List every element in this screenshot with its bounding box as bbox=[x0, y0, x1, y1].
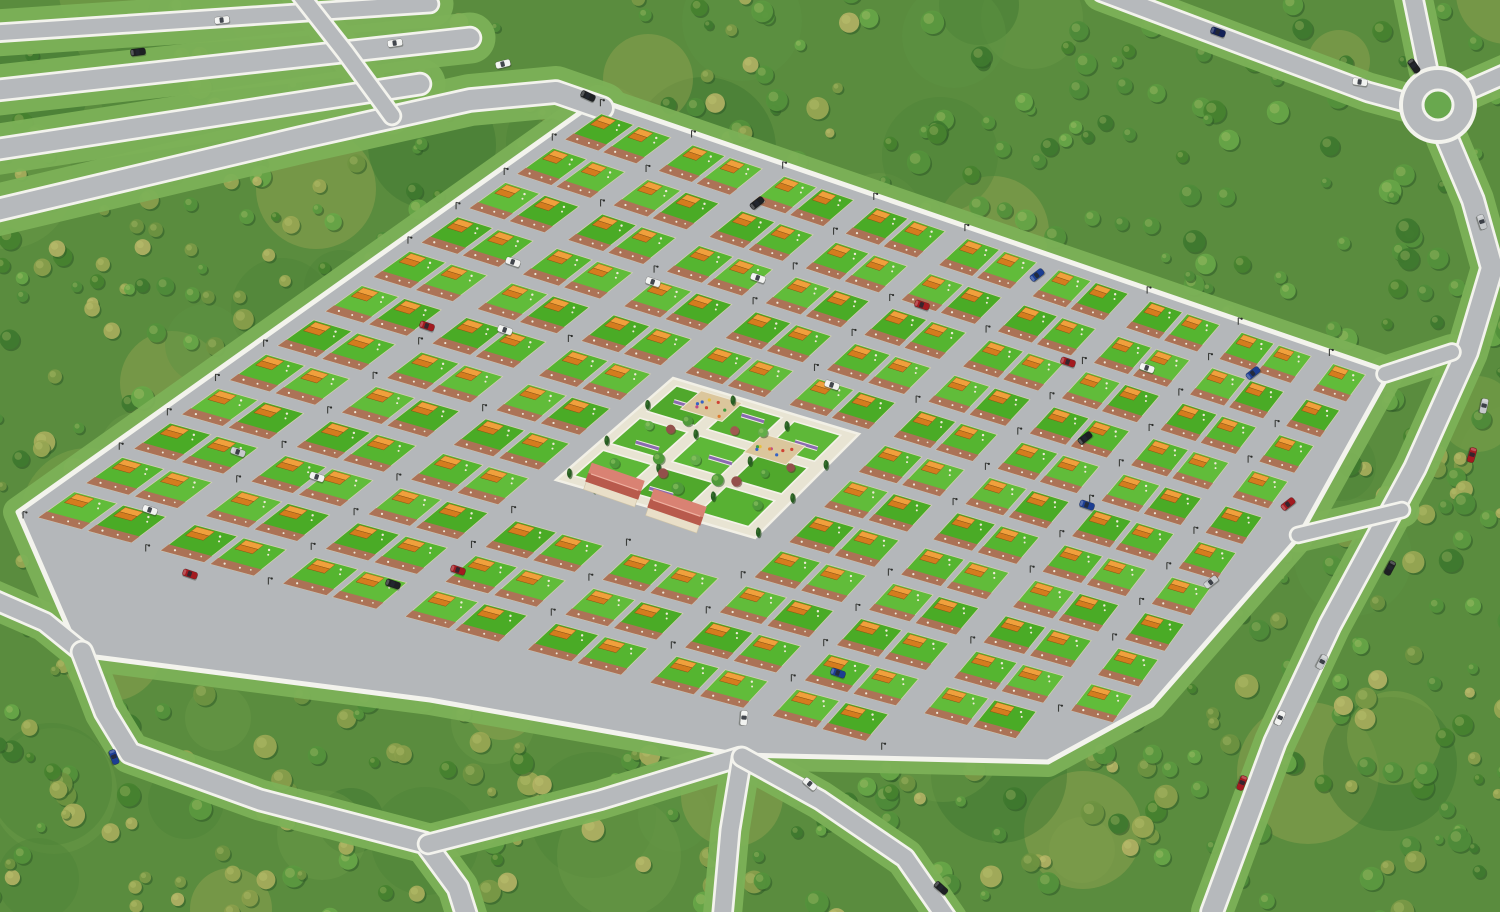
walkway bbox=[774, 327, 776, 329]
patio-furniture bbox=[848, 644, 850, 646]
patio-furniture bbox=[444, 342, 446, 344]
patio-furniture bbox=[901, 387, 903, 389]
patio-furniture bbox=[927, 350, 929, 352]
patio-furniture bbox=[678, 270, 680, 272]
patio-furniture bbox=[987, 276, 989, 278]
patio-furniture bbox=[856, 420, 858, 422]
patio-furniture bbox=[874, 650, 876, 652]
walkway bbox=[822, 700, 824, 702]
walkway bbox=[1116, 525, 1118, 527]
walkway bbox=[940, 421, 942, 423]
patio-furniture bbox=[579, 238, 581, 240]
walkway bbox=[593, 408, 595, 410]
walkway bbox=[529, 341, 531, 343]
walkway bbox=[98, 502, 100, 504]
patio-furniture bbox=[838, 368, 840, 370]
walkway bbox=[1242, 432, 1244, 434]
patio-furniture bbox=[980, 413, 982, 415]
patio-furniture bbox=[458, 580, 460, 582]
patio-furniture bbox=[728, 188, 730, 190]
patio-furniture bbox=[712, 695, 714, 697]
walkway bbox=[1114, 293, 1116, 295]
patio-furniture bbox=[323, 450, 325, 452]
patio-furniture bbox=[394, 327, 396, 329]
patio-furniture bbox=[326, 498, 328, 500]
patio-furniture bbox=[816, 315, 818, 317]
walkway bbox=[902, 678, 904, 680]
patio-furniture bbox=[876, 286, 878, 288]
patio-furniture bbox=[1008, 330, 1010, 332]
walkway bbox=[703, 203, 705, 205]
patio-furniture bbox=[289, 486, 291, 488]
walkway bbox=[963, 612, 965, 614]
patio-furniture bbox=[1008, 467, 1010, 469]
walkway bbox=[1273, 481, 1275, 483]
walkway bbox=[1145, 490, 1147, 492]
patio-furniture bbox=[917, 439, 919, 441]
patio-furniture bbox=[511, 361, 513, 363]
walkway bbox=[552, 443, 554, 445]
patio-furniture bbox=[1019, 516, 1021, 518]
patio-furniture bbox=[267, 385, 269, 387]
walkway bbox=[1043, 316, 1045, 318]
patio-furniture bbox=[823, 410, 825, 412]
walkway bbox=[804, 567, 806, 569]
walkway bbox=[427, 267, 429, 269]
patio-furniture bbox=[588, 142, 590, 144]
patio-furniture bbox=[1029, 336, 1031, 338]
walkway bbox=[854, 253, 856, 255]
patio-furniture bbox=[1182, 477, 1184, 479]
walkway bbox=[592, 413, 594, 415]
walkway bbox=[147, 516, 149, 518]
patio-furniture bbox=[801, 213, 803, 215]
patio-furniture bbox=[1295, 424, 1297, 426]
patio-furniture bbox=[1082, 535, 1084, 537]
patio-furniture bbox=[800, 718, 802, 720]
walkway bbox=[630, 648, 632, 650]
patio-furniture bbox=[624, 204, 626, 206]
walkway bbox=[263, 501, 265, 503]
patio-furniture bbox=[443, 390, 445, 392]
patio-furniture bbox=[1050, 480, 1052, 482]
patio-furniture bbox=[1097, 583, 1099, 585]
walkway bbox=[974, 386, 976, 388]
patio-furniture bbox=[99, 482, 101, 484]
patio-furniture bbox=[1028, 694, 1030, 696]
walkway bbox=[892, 223, 894, 225]
patio-furniture bbox=[1173, 339, 1175, 341]
patio-furniture bbox=[905, 615, 907, 617]
patio-furniture bbox=[424, 431, 426, 433]
patio-furniture bbox=[865, 692, 867, 694]
walkway bbox=[465, 469, 467, 471]
patio-furniture bbox=[438, 482, 440, 484]
walkway bbox=[378, 344, 380, 346]
walkway bbox=[1042, 320, 1044, 322]
walkway bbox=[735, 362, 737, 364]
walkway bbox=[1103, 604, 1105, 606]
patio-furniture bbox=[1191, 434, 1193, 436]
patio-furniture bbox=[849, 510, 851, 512]
patio-furniture bbox=[487, 258, 489, 260]
walkway bbox=[736, 357, 738, 359]
walkway bbox=[1270, 396, 1272, 398]
patio-furniture bbox=[968, 544, 970, 546]
walkway bbox=[571, 158, 573, 160]
walkway bbox=[850, 580, 852, 582]
patio-furniture bbox=[1154, 468, 1156, 470]
patio-furniture bbox=[312, 398, 314, 400]
patio-furniture bbox=[677, 596, 679, 598]
patio-furniture bbox=[689, 688, 691, 690]
patio-furniture bbox=[1007, 282, 1009, 284]
walkway bbox=[287, 365, 289, 367]
walkway bbox=[1203, 414, 1205, 416]
patio-furniture bbox=[669, 169, 671, 171]
walkway bbox=[239, 404, 241, 406]
patio-furniture bbox=[1290, 466, 1292, 468]
walkway bbox=[1076, 645, 1078, 647]
walkway bbox=[633, 378, 635, 380]
patio-furniture bbox=[868, 236, 870, 238]
patio-furniture bbox=[1189, 567, 1191, 569]
patio-furniture bbox=[723, 652, 725, 654]
patio-furniture bbox=[574, 380, 576, 382]
patio-furniture bbox=[657, 311, 659, 313]
patio-furniture bbox=[1241, 361, 1243, 363]
walkway bbox=[653, 142, 655, 144]
patio-furniture bbox=[544, 325, 546, 327]
walkway bbox=[286, 370, 288, 372]
walkway bbox=[398, 450, 400, 452]
patio-furniture bbox=[941, 626, 943, 628]
walkway bbox=[382, 296, 384, 298]
patio-furniture bbox=[428, 526, 430, 528]
patio-furniture bbox=[551, 374, 553, 376]
walkway bbox=[666, 617, 668, 619]
walkway bbox=[539, 532, 541, 534]
play-equipment bbox=[705, 406, 708, 409]
patio-furniture bbox=[580, 189, 582, 191]
patio-furniture bbox=[675, 221, 677, 223]
walkway bbox=[853, 258, 855, 260]
walkway bbox=[1203, 419, 1205, 421]
walkway bbox=[675, 338, 677, 340]
patio-furniture bbox=[761, 391, 763, 393]
patio-furniture bbox=[838, 321, 840, 323]
walkway bbox=[1015, 399, 1017, 401]
patio-furniture bbox=[1124, 414, 1126, 416]
walkway bbox=[701, 582, 703, 584]
walkway bbox=[1215, 467, 1217, 469]
patio-furniture bbox=[1133, 680, 1135, 682]
patio-furniture bbox=[698, 324, 700, 326]
walkway bbox=[854, 300, 856, 302]
patio-furniture bbox=[1093, 403, 1095, 405]
patio-furniture bbox=[766, 576, 768, 578]
patio-furniture bbox=[309, 446, 311, 448]
patio-furniture bbox=[687, 598, 689, 600]
patio-furniture bbox=[926, 577, 928, 579]
patio-furniture bbox=[368, 415, 370, 417]
patio-furniture bbox=[1024, 605, 1026, 607]
walkway bbox=[1352, 379, 1354, 381]
walkway bbox=[511, 477, 513, 479]
patio-furniture bbox=[448, 484, 450, 486]
walkway bbox=[1195, 588, 1197, 590]
walkway bbox=[736, 637, 738, 639]
patio-furniture bbox=[605, 666, 607, 668]
walkway bbox=[1084, 471, 1086, 473]
walkway bbox=[144, 473, 146, 475]
walkway bbox=[97, 507, 99, 509]
walkway bbox=[1011, 493, 1013, 495]
patio-furniture bbox=[798, 308, 800, 310]
patio-furniture bbox=[1133, 416, 1135, 418]
walkway bbox=[334, 330, 336, 332]
walkway bbox=[1247, 517, 1249, 519]
patio-furniture bbox=[1093, 625, 1095, 627]
walkway bbox=[1054, 501, 1056, 503]
patio-furniture bbox=[1009, 645, 1011, 647]
patio-furniture bbox=[804, 631, 806, 633]
patio-furniture bbox=[1072, 397, 1074, 399]
patio-furniture bbox=[512, 550, 514, 552]
patio-furniture bbox=[927, 622, 929, 624]
patio-furniture bbox=[607, 391, 609, 393]
patio-furniture bbox=[1141, 464, 1143, 466]
walkway bbox=[1174, 454, 1176, 456]
patio-furniture bbox=[590, 662, 592, 664]
walkway bbox=[470, 517, 472, 519]
patio-furniture bbox=[406, 519, 408, 521]
patio-furniture bbox=[926, 488, 928, 490]
patio-furniture bbox=[969, 454, 971, 456]
walkway bbox=[331, 383, 333, 385]
patio-furniture bbox=[302, 396, 304, 398]
patio-furniture bbox=[1048, 612, 1050, 614]
walkway bbox=[607, 176, 609, 178]
patio-furniture bbox=[372, 602, 374, 604]
patio-furniture bbox=[989, 507, 991, 509]
walkway bbox=[1159, 533, 1161, 535]
patio-furniture bbox=[1185, 343, 1187, 345]
patio-furniture bbox=[483, 633, 485, 635]
patio-furniture bbox=[1267, 370, 1269, 372]
patio-furniture bbox=[936, 490, 938, 492]
walkway bbox=[854, 665, 856, 667]
patio-furniture bbox=[944, 538, 946, 540]
walkway bbox=[674, 296, 676, 298]
patio-furniture bbox=[1255, 500, 1257, 502]
walkway bbox=[871, 713, 873, 715]
patio-furniture bbox=[616, 346, 618, 348]
patio-furniture bbox=[399, 376, 401, 378]
patio-furniture bbox=[636, 208, 638, 210]
walkway bbox=[823, 705, 825, 707]
walkway bbox=[813, 292, 815, 294]
walkway bbox=[1175, 365, 1177, 367]
walkway bbox=[333, 335, 335, 337]
walkway bbox=[1043, 453, 1045, 455]
patio-furniture bbox=[1026, 382, 1028, 384]
patio-furniture bbox=[1104, 361, 1106, 363]
patio-furniture bbox=[592, 242, 594, 244]
patio-furniture bbox=[380, 465, 382, 467]
patio-furniture bbox=[834, 728, 836, 730]
patio-furniture bbox=[560, 563, 562, 565]
patio-furniture bbox=[334, 452, 336, 454]
patio-furniture bbox=[617, 393, 619, 395]
walkway bbox=[1168, 312, 1170, 314]
walkway bbox=[838, 531, 840, 533]
walkway bbox=[980, 528, 982, 530]
patio-furniture bbox=[1083, 623, 1085, 625]
patio-furniture bbox=[402, 565, 404, 567]
walkway bbox=[355, 480, 357, 482]
walkway bbox=[655, 137, 657, 139]
patio-furniture bbox=[972, 317, 974, 319]
patio-furniture bbox=[801, 541, 803, 543]
walkway bbox=[949, 474, 951, 476]
walkway bbox=[745, 173, 747, 175]
patio-furniture bbox=[856, 232, 858, 234]
walkway bbox=[396, 402, 398, 404]
walkway bbox=[1274, 486, 1276, 488]
walkway bbox=[1300, 445, 1302, 447]
walkway bbox=[1298, 361, 1300, 363]
patio-furniture bbox=[961, 406, 963, 408]
walkway bbox=[906, 461, 908, 463]
patio-furniture bbox=[446, 245, 448, 247]
patio-furniture bbox=[684, 223, 686, 225]
patio-furniture bbox=[242, 379, 244, 381]
patio-furniture bbox=[761, 664, 763, 666]
patio-furniture bbox=[443, 530, 445, 532]
patio-furniture bbox=[986, 369, 988, 371]
patio-furniture bbox=[396, 517, 398, 519]
patio-furniture bbox=[936, 579, 938, 581]
walkway bbox=[1137, 352, 1139, 354]
walkway bbox=[1231, 378, 1233, 380]
patio-furniture bbox=[67, 520, 69, 522]
patio-furniture bbox=[936, 352, 938, 354]
patio-furniture bbox=[480, 448, 482, 450]
patio-furniture bbox=[965, 676, 967, 678]
walkway bbox=[429, 552, 431, 554]
patio-furniture bbox=[749, 341, 751, 343]
patio-furniture bbox=[1210, 441, 1212, 443]
patio-furniture bbox=[936, 712, 938, 714]
patio-furniture bbox=[812, 589, 814, 591]
patio-furniture bbox=[1030, 473, 1032, 475]
walkway bbox=[634, 373, 636, 375]
patio-furniture bbox=[640, 585, 642, 587]
walkway bbox=[1059, 596, 1061, 598]
patio-furniture bbox=[1042, 522, 1044, 524]
patio-furniture bbox=[915, 346, 917, 348]
patio-furniture bbox=[334, 357, 336, 359]
patio-furniture bbox=[423, 383, 425, 385]
patio-furniture bbox=[719, 378, 721, 380]
walkway bbox=[1048, 363, 1050, 365]
patio-furniture bbox=[648, 356, 650, 358]
walkway bbox=[1145, 395, 1147, 397]
patio-furniture bbox=[556, 279, 558, 281]
patio-furniture bbox=[1307, 428, 1309, 430]
patio-furniture bbox=[209, 417, 211, 419]
patio-furniture bbox=[951, 311, 953, 313]
walkway bbox=[470, 275, 472, 277]
walkway bbox=[1145, 485, 1147, 487]
walkway bbox=[716, 261, 718, 263]
walkway bbox=[1195, 593, 1197, 595]
patio-furniture bbox=[635, 305, 637, 307]
patio-furniture bbox=[816, 267, 818, 269]
patio-furniture bbox=[418, 615, 420, 617]
walkway bbox=[674, 343, 676, 345]
patio-furniture bbox=[870, 470, 872, 472]
patio-furniture bbox=[354, 552, 356, 554]
walkway bbox=[486, 376, 488, 378]
patio-furniture bbox=[314, 351, 316, 353]
patio-furniture bbox=[404, 329, 406, 331]
walkway bbox=[1115, 430, 1117, 432]
walkway bbox=[1058, 591, 1060, 593]
patio-furniture bbox=[719, 186, 721, 188]
walkway bbox=[145, 468, 147, 470]
walkway bbox=[1137, 347, 1139, 349]
walkway bbox=[240, 399, 242, 401]
patio-furniture bbox=[800, 403, 802, 405]
patio-furniture bbox=[378, 417, 380, 419]
walkway bbox=[885, 629, 887, 631]
patio-furniture bbox=[887, 337, 889, 339]
patio-furniture bbox=[837, 273, 839, 275]
walkway bbox=[993, 572, 995, 574]
patio-furniture bbox=[785, 714, 787, 716]
walkway bbox=[268, 549, 270, 551]
patio-furniture bbox=[1242, 495, 1244, 497]
patio-furniture bbox=[648, 309, 650, 311]
walkway bbox=[665, 190, 667, 192]
walkway bbox=[796, 239, 798, 241]
patio-furniture bbox=[1047, 343, 1049, 345]
walkway bbox=[751, 686, 753, 688]
patio-furniture bbox=[507, 594, 509, 596]
patio-furniture bbox=[529, 172, 531, 174]
patio-furniture bbox=[545, 559, 547, 561]
patio-furniture bbox=[821, 220, 823, 222]
walkway bbox=[916, 509, 918, 511]
patio-furniture bbox=[128, 536, 130, 538]
walkway bbox=[1087, 556, 1089, 558]
walkway bbox=[1081, 328, 1083, 330]
patio-furniture bbox=[837, 595, 839, 597]
patio-furniture bbox=[346, 596, 348, 598]
walkway bbox=[702, 667, 704, 669]
walkway bbox=[675, 291, 677, 293]
patio-furniture bbox=[893, 523, 895, 525]
walkway bbox=[507, 430, 509, 432]
walkway bbox=[1021, 716, 1023, 718]
patio-furniture bbox=[1010, 732, 1012, 734]
patio-furniture bbox=[832, 683, 834, 685]
walkway bbox=[837, 204, 839, 206]
walkway bbox=[974, 391, 976, 393]
patio-furniture bbox=[338, 547, 340, 549]
